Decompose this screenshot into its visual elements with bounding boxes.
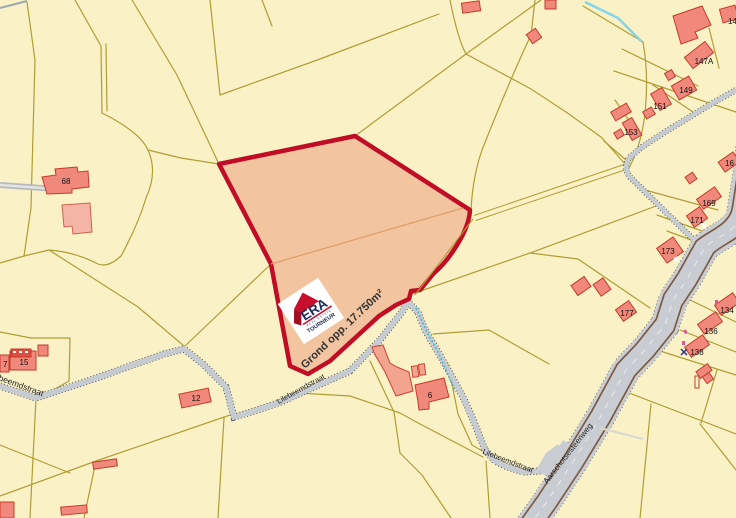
svg-text:16: 16 xyxy=(725,159,734,168)
svg-text:169: 169 xyxy=(702,199,716,208)
svg-text:173: 173 xyxy=(661,247,675,256)
svg-text:134: 134 xyxy=(720,306,734,315)
svg-text:171: 171 xyxy=(690,216,704,225)
svg-text:68: 68 xyxy=(62,177,71,186)
svg-text:136: 136 xyxy=(704,327,718,336)
svg-text:147: 147 xyxy=(728,17,736,26)
svg-text:12: 12 xyxy=(192,394,201,403)
svg-text:177: 177 xyxy=(620,309,634,318)
svg-text:7: 7 xyxy=(3,360,8,369)
svg-text:151: 151 xyxy=(653,102,667,111)
svg-text:153: 153 xyxy=(624,128,638,137)
svg-text:15: 15 xyxy=(20,358,29,367)
svg-text:147A: 147A xyxy=(695,57,714,66)
svg-text:138: 138 xyxy=(690,348,704,357)
svg-text:6: 6 xyxy=(428,391,433,400)
svg-text:149: 149 xyxy=(679,86,693,95)
